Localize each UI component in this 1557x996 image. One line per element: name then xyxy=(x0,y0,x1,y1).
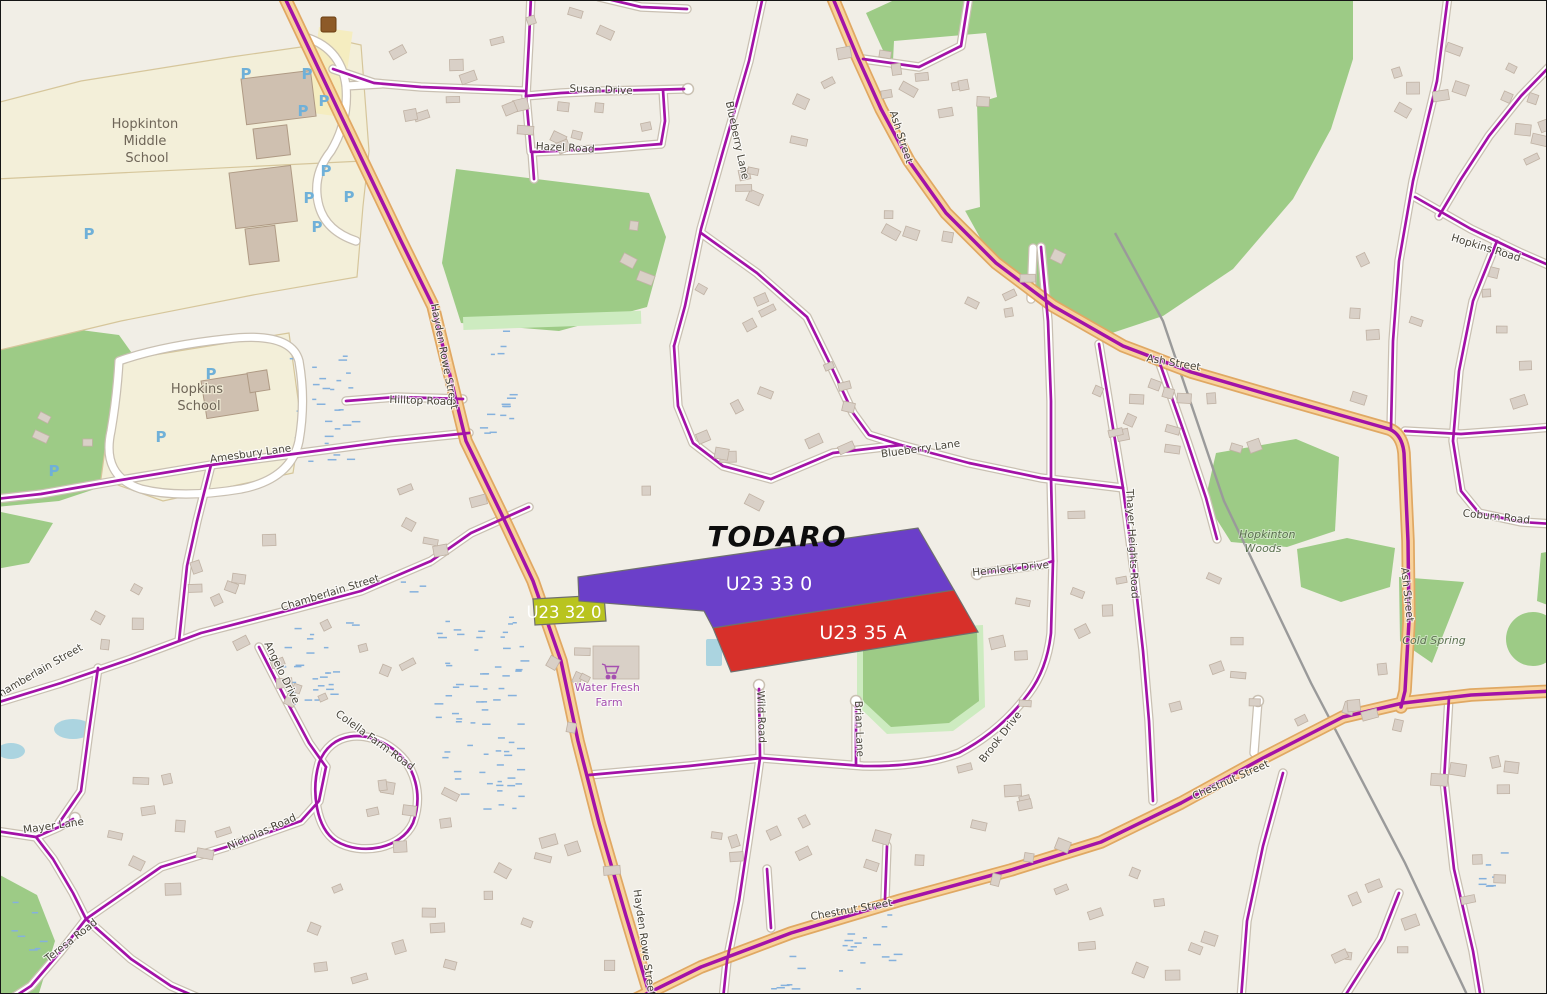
parking-icon: P xyxy=(344,188,355,206)
parcel-label-u23-33-0: U23 33 0 xyxy=(726,573,812,595)
parking-icon: P xyxy=(302,65,313,83)
parking-icon: P xyxy=(49,462,60,480)
map-viewport: PPPPPPPPPPPP Susan DriveHazel RoadBluebe… xyxy=(0,0,1557,996)
street-label-brian-lane: Brian Lane xyxy=(852,701,866,758)
parking-icon: P xyxy=(298,102,309,120)
cold-spring-label: Cold Spring xyxy=(1402,634,1465,647)
parking-icon: P xyxy=(206,365,217,383)
parking-icon: P xyxy=(241,65,252,83)
street-label-susan-drive: Susan Drive xyxy=(569,83,633,97)
parking-icon: P xyxy=(319,92,330,110)
owner-label-todaro: TODARO xyxy=(707,520,846,553)
parking-icon: P xyxy=(84,225,95,243)
parcel-label-u23-32-0: U23 32 0 xyxy=(526,603,601,622)
parking-icon: P xyxy=(304,189,315,207)
parking-icon: P xyxy=(312,218,323,236)
map-canvas[interactable]: PPPPPPPPPPPP Susan DriveHazel RoadBluebe… xyxy=(1,1,1547,994)
map-frame: PPPPPPPPPPPP Susan DriveHazel RoadBluebe… xyxy=(0,0,1547,994)
parcel-label-u23-35-a: U23 35 A xyxy=(819,622,906,644)
parking-icon: P xyxy=(321,162,332,180)
street-label-wild-road: Wild Road xyxy=(754,691,768,744)
parking-icon: P xyxy=(156,428,167,446)
landmark-icon xyxy=(321,17,336,32)
street-label-hilltop-road: Hilltop Road xyxy=(389,394,453,408)
